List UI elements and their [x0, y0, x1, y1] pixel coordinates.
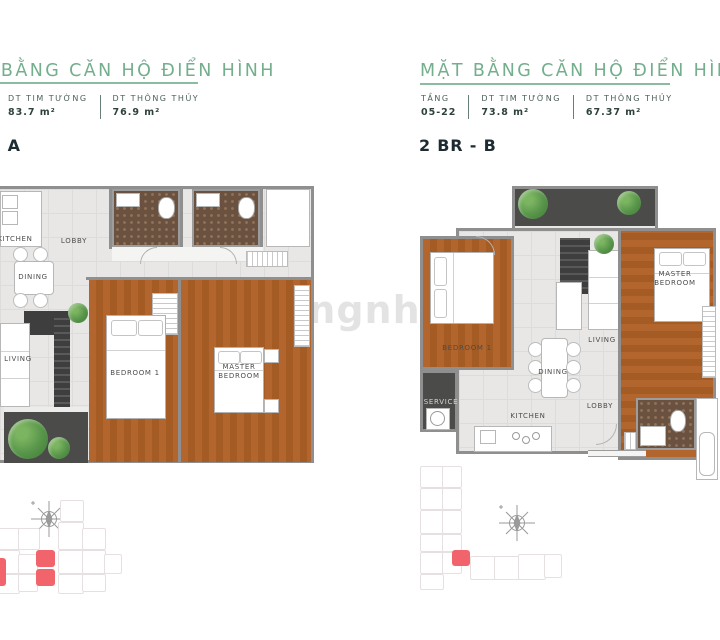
- highlighted-unit: [452, 550, 470, 566]
- stove-burner: [512, 432, 520, 440]
- wardrobe: [702, 306, 716, 378]
- kitchen-sink: [480, 430, 496, 444]
- kitchen-island: [556, 282, 582, 330]
- kitchen-appliance: [2, 195, 18, 209]
- room-label-bedroom1: BEDROOM 1: [102, 369, 168, 378]
- stat-dt-tim-tuong: DT TIM TƯỜNG 83.7 m²: [8, 94, 88, 118]
- pillow: [659, 252, 682, 266]
- stat-dt-thong-thuy: DT THÔNG THỦY 67.37 m²: [586, 94, 673, 118]
- stat-divider: [468, 95, 469, 119]
- stove-burner: [522, 436, 530, 444]
- plant-icon: [617, 191, 641, 215]
- bathtub: [699, 432, 715, 476]
- panel-b-stats: TẦNG 05-22 DT TIM TƯỜNG 73.8 m² DT THÔNG…: [421, 94, 685, 119]
- wardrobe: [246, 251, 288, 267]
- plant-icon: [68, 303, 88, 323]
- nightstand: [264, 399, 279, 413]
- room-label-living: LIVING: [582, 336, 622, 345]
- unit-cell: [58, 522, 84, 550]
- unit-cell: [0, 528, 20, 550]
- floorplan-unit-b: BEDROOM 1 LIVING MASTER BEDROOM SERVICE …: [420, 186, 718, 482]
- room-label-lobby: LOBBY: [54, 237, 94, 246]
- sofa-cushion-line: [589, 303, 619, 304]
- unit-cell: [494, 556, 520, 580]
- floorplan-unit-a: KITCHEN LOBBY DINING LIVING BEDROOM 1 MA…: [0, 186, 314, 463]
- plant-icon: [8, 419, 48, 459]
- bed-fold: [453, 253, 454, 323]
- sofa: [588, 250, 620, 330]
- floorplan-brochure-page: sangnhuong MẶT BẰNG CĂN HỘ ĐIỂN HÌNH DT …: [0, 0, 720, 640]
- bed: [106, 315, 166, 419]
- stat-divider: [100, 95, 101, 119]
- unit-cell: [470, 556, 496, 580]
- unit-cell: [18, 528, 40, 550]
- toilet: [670, 410, 686, 432]
- highlighted-unit: [0, 558, 6, 586]
- unit-cell: [544, 554, 562, 578]
- unit-cell: [420, 534, 444, 552]
- unit-cell: [420, 488, 444, 510]
- room-label-dining: DINING: [526, 368, 580, 377]
- unit-cell: [82, 550, 106, 574]
- unit-cell: [420, 552, 444, 574]
- chair: [33, 247, 48, 262]
- highlighted-unit: [36, 569, 55, 586]
- panel-b-title: MẶT BẰNG CĂN HỘ ĐIỂN HÌNH: [420, 61, 720, 81]
- unit-cell: [58, 574, 84, 594]
- site-keyplan-a: [0, 488, 276, 638]
- unit-cell: [442, 510, 462, 534]
- hallway: [112, 247, 263, 261]
- panel-a-stats: DT TIM TƯỜNG 83.7 m² DT THÔNG THỦY 76.9 …: [8, 94, 211, 119]
- sofa-cushion-line: [1, 351, 29, 352]
- nightstand: [264, 349, 279, 363]
- wall: [260, 189, 263, 249]
- room-label-dining: DINING: [6, 273, 60, 282]
- unit-cell: [442, 466, 462, 488]
- room-label-master-bedroom: MASTER BEDROOM: [210, 363, 268, 382]
- unit-cell: [60, 500, 84, 522]
- sofa: [0, 323, 30, 407]
- unit-cell: [420, 466, 444, 488]
- toilet: [238, 197, 255, 219]
- highlighted-unit: [36, 550, 55, 567]
- chair: [13, 293, 28, 308]
- unit-cell: [82, 528, 106, 550]
- bathroom-sink: [640, 426, 666, 446]
- plant-icon: [48, 437, 70, 459]
- washer-door: [430, 411, 445, 426]
- unit-cell: [58, 550, 84, 574]
- panel-a-title: MẶT BẰNG CĂN HỘ ĐIỂN HÌNH: [0, 61, 276, 81]
- panel-b-title-underline: [420, 83, 670, 85]
- panel-a-title-underline: [0, 82, 198, 84]
- sofa-cushion-line: [1, 378, 29, 379]
- stove-burner: [532, 432, 540, 440]
- sofa-cushion-line: [589, 277, 619, 278]
- shower-room: [266, 189, 310, 247]
- bathroom-sink: [196, 193, 220, 207]
- tv-cabinet: [54, 315, 70, 409]
- bed-fold: [107, 350, 165, 351]
- chair: [13, 247, 28, 262]
- room-label-lobby: LOBBY: [578, 402, 622, 411]
- room-label-bedroom1: BEDROOM 1: [434, 344, 500, 353]
- site-keyplan-b: [412, 462, 587, 612]
- bed: [430, 252, 494, 324]
- chair: [566, 378, 581, 393]
- unit-cell: [82, 574, 106, 592]
- kitchen-sink: [2, 211, 18, 225]
- room-label-service: SERVICE: [418, 398, 464, 407]
- unit-cell: [104, 554, 122, 574]
- pillow: [111, 320, 137, 336]
- unit-cell: [420, 510, 444, 534]
- room-label-master-bedroom: MASTER BEDROOM: [640, 270, 710, 289]
- pillow: [434, 289, 447, 318]
- panel-b-unit-label: 2 BR - B: [419, 136, 497, 155]
- plant-icon: [518, 189, 548, 219]
- toilet: [158, 197, 175, 219]
- unit-cell: [18, 574, 38, 592]
- chair: [566, 342, 581, 357]
- compass-icon: [498, 504, 536, 542]
- panel-a-unit-label: 2 BR - A: [0, 136, 21, 155]
- wall: [180, 189, 183, 249]
- stat-tang: TẦNG 05-22: [421, 94, 456, 118]
- pillow: [434, 257, 447, 286]
- unit-cell: [518, 554, 546, 580]
- room-label-kitchen: KITCHEN: [0, 235, 40, 244]
- room-label-kitchen: KITCHEN: [504, 412, 552, 421]
- pillow: [683, 252, 706, 266]
- pillow: [138, 320, 163, 336]
- unit-cell: [18, 554, 38, 574]
- unit-cell: [420, 574, 444, 590]
- railing: [588, 450, 646, 457]
- room-label-living: LIVING: [0, 355, 36, 364]
- unit-cell: [442, 488, 462, 510]
- bathroom-sink: [116, 193, 140, 207]
- stat-dt-thong-thuy: DT THÔNG THỦY 76.9 m²: [113, 94, 200, 118]
- wardrobe: [294, 285, 310, 347]
- stat-divider: [573, 95, 574, 119]
- chair: [33, 293, 48, 308]
- plant-icon: [594, 234, 614, 254]
- stat-dt-tim-tuong: DT TIM TƯỜNG 73.8 m²: [481, 94, 561, 118]
